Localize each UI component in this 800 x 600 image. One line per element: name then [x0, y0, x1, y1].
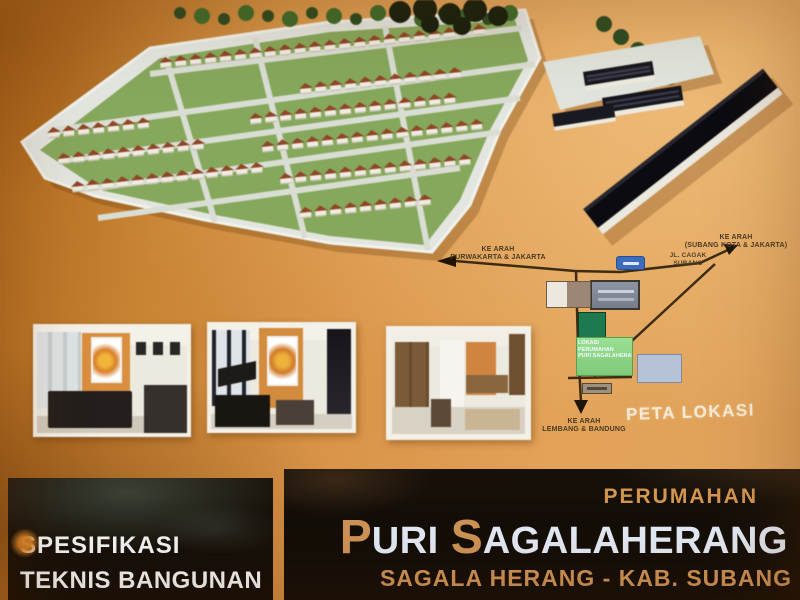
spec-title-line1: SPESIFIKASI	[20, 532, 262, 560]
blue-road-sign	[616, 256, 645, 270]
map-label-west-line1: KE ARAH	[442, 246, 554, 254]
map-small-sign	[582, 383, 612, 394]
project-name: PURISAGALAHERANG	[284, 510, 788, 565]
map-label-west-line2: PURWAKARTA & JAKARTA	[442, 254, 554, 262]
map-building-box-bluegray	[637, 354, 682, 383]
project-name-part-2: AGALAHERANG	[483, 520, 788, 562]
brochure-photo: KE ARAH PURWAKARTA & JAKARTA KE ARAH (SU…	[0, 0, 800, 600]
project-location: SAGALA HERANG - KAB. SUBANG	[284, 565, 792, 592]
map-label-junction: JL. CAGAK SUBANG	[648, 252, 728, 268]
map-label-south-line1: KE ARAH	[528, 418, 640, 426]
map-location-box: LOKASI PERUMAHAN PURI SAGALAHERANG	[576, 337, 633, 376]
wall-art-shape	[267, 336, 298, 385]
map-label-south-line2: LEMBANG & BANDUNG	[528, 426, 640, 434]
picture-frames-shape	[136, 342, 186, 356]
map-label-west: KE ARAH PURWAKARTA & JAKARTA	[442, 246, 554, 262]
wall-art-shape	[91, 337, 122, 383]
cabinet-shape	[144, 385, 188, 433]
tall-cabinet-shape	[327, 329, 351, 426]
table-shape	[276, 400, 314, 425]
map-building-box-darkgreen	[578, 312, 606, 338]
spec-panel: SPESIFIKASI TEKNIS BANGUNAN	[8, 478, 273, 600]
project-kicker: PERUMAHAN	[284, 485, 758, 509]
map-label-east-line1: KE ARAH	[677, 234, 795, 242]
wardrobe-shape	[395, 342, 430, 411]
map-label-south: KE ARAH LEMBANG & BANDUNG	[528, 418, 640, 434]
interior-photo-living-room	[33, 324, 191, 437]
project-name-initial-2: S	[451, 511, 483, 564]
interior-photo-dining-room	[207, 322, 356, 433]
sofa-shape	[215, 395, 270, 427]
sofa-shape	[48, 391, 132, 428]
location-map: KE ARAH PURWAKARTA & JAKARTA KE ARAH (SU…	[430, 226, 800, 460]
spec-title-line2: TEKNIS BANGUNAN	[20, 567, 262, 595]
map-building-box-twotone	[546, 281, 591, 308]
map-label-junction-line1: JL. CAGAK	[648, 252, 728, 260]
project-name-part-1: URI	[372, 520, 439, 562]
map-building-box-gray	[590, 280, 640, 310]
map-label-east: KE ARAH (SUBANG KOTA & JAKARTA)	[677, 234, 795, 250]
arrow-south	[574, 400, 588, 414]
glare-spot	[10, 528, 40, 558]
project-name-initial-1: P	[340, 511, 372, 564]
map-label-east-line2: (SUBANG KOTA & JAKARTA)	[677, 242, 795, 250]
map-label-junction-line2: SUBANG	[648, 260, 728, 268]
title-panel: PERUMAHAN PURISAGALAHERANG SAGALA HERANG…	[284, 469, 800, 600]
map-location-line3: PURI SAGALAHERANG	[578, 353, 631, 360]
